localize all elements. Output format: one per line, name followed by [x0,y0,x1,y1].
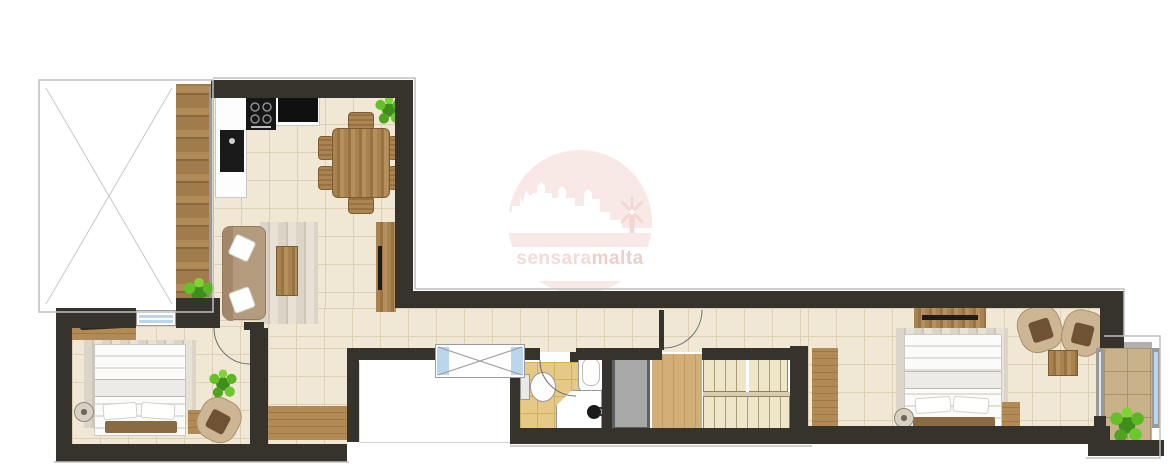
door-arcs [214,310,702,396]
floor-plan: sensaramalta [0,0,1176,464]
door-arc-bedroom1 [214,328,250,364]
terrace-outline [39,80,213,312]
exterior-outline [39,78,1160,462]
terrace-x-mark [46,88,172,304]
door-arc-stairhall [664,310,702,348]
door-arc-bathroom [540,360,576,396]
annotations-overlay [0,0,1176,464]
